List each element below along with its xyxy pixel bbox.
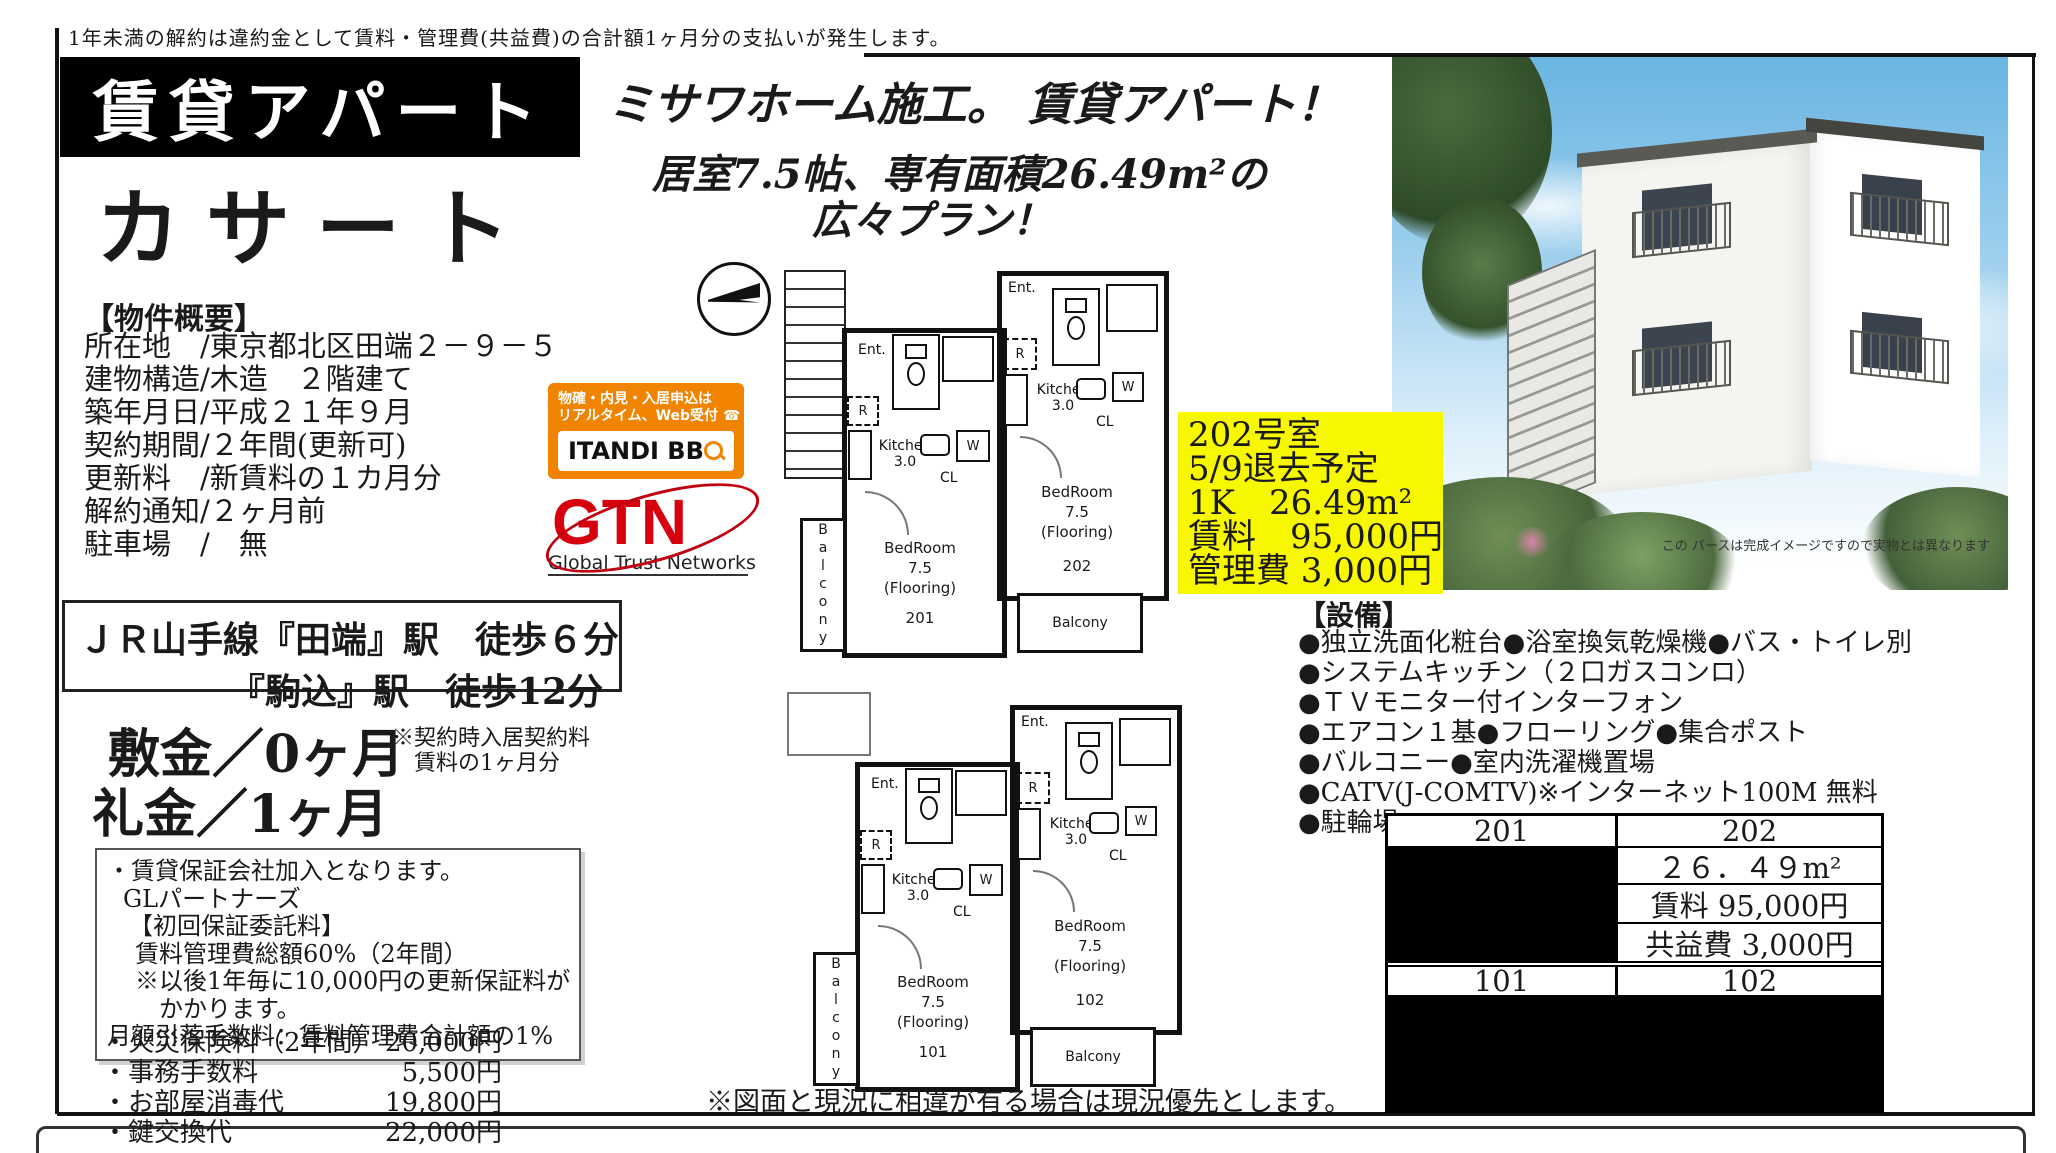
toilet-tank-icon [918, 778, 940, 793]
equipment-line: ●独立洗面化粧台●浴室換気乾燥機●バス・トイレ別 [1298, 628, 1912, 658]
highlight-line: 5/9退去予定 [1188, 452, 1433, 486]
bedroom-size: 7.5 [1022, 502, 1132, 522]
balcony-202: Balcony [1017, 593, 1143, 653]
equipment-line: ●システムキッチン（２口ガスコンロ） [1298, 658, 1912, 688]
itandi-line-2-text: リアルタイム、Web受付 [558, 408, 718, 424]
kitchen-size: 3.0 [883, 888, 953, 904]
balcony-101: Balcony [813, 952, 859, 1086]
staircase [784, 270, 846, 479]
flyer-canvas: 1年未満の解約は違約金として賃料・管理費(共益費)の合計額1ヶ月分の支払いが発生… [0, 0, 2056, 1153]
gtn-logo: GTN Global Trust Networks [548, 492, 748, 592]
top-disclaimer: 1年未満の解約は違約金として賃料・管理費(共益費)の合計額1ヶ月分の支払いが発生… [68, 22, 950, 51]
fee-row: ・お部屋消毒代 19,800円 [102, 1088, 502, 1118]
toilet-icon [920, 796, 938, 820]
unit-202-number: 202 [1022, 556, 1132, 576]
ent-label: Ent. [871, 776, 899, 792]
fee-row: ・火災保険料（2年間） 20,000円 [102, 1028, 502, 1058]
itandi-search-bar: ITANDI BB [558, 431, 734, 471]
refrigerator-box: R [1016, 772, 1050, 804]
washbasin-icon [920, 434, 950, 456]
washer-box: W [956, 430, 990, 462]
fee-label: ・鍵交換代 [102, 1118, 232, 1148]
guarantee-line: ・賃貸保証会社加入となります。 [107, 858, 569, 886]
guarantee-line: 【初回保証委託料】 [129, 913, 569, 941]
flooring-word: (Flooring) [1035, 956, 1145, 976]
kitchen-counter [861, 864, 885, 914]
unit-201-number: 201 [865, 608, 975, 628]
equipment-line: ●バルコニー●室内洗濯機置場 [1298, 748, 1912, 778]
deposit-note-2: 賃料の1ヶ月分 [414, 751, 590, 776]
floorplan-2f: Ent. R Kitchen 3.0 W CL BedRoom 7.5 (Flo… [770, 256, 1190, 652]
toilet-room [1052, 288, 1100, 366]
balcony-102: Balcony [1030, 1027, 1156, 1087]
porch-outline [787, 692, 871, 756]
floorplan-note: ※図面と現況に相違が有る場合は現況優先とします。 [706, 1080, 1351, 1119]
bedroom-word: BedRoom [1035, 916, 1145, 936]
property-name: カサート [96, 162, 536, 283]
fee-row: ・鍵交換代 22,000円 [102, 1118, 502, 1148]
deposit-reikin: 礼金／1ヶ月 [92, 772, 388, 847]
phone-icon: ☎ [723, 408, 740, 424]
itandi-brand: ITANDI BB [568, 437, 704, 465]
category-title: 賃貸アパート [93, 59, 548, 155]
highlight-line: 1K 26.49m² [1188, 486, 1433, 520]
fee-price: 19,800円 [385, 1088, 502, 1118]
kitchen-counter [848, 430, 872, 480]
access-box: ＪＲ山手線『田端』駅 徒歩６分 『駒込』駅 徒歩12分 [62, 600, 622, 692]
ent-label: Ent. [1021, 714, 1049, 730]
fee-price: 20,000円 [385, 1028, 502, 1058]
overview-line: 契約期間/２年間(更新可) [84, 429, 558, 462]
equipment-line: ●CATV(J-COMTV)※インターネット100M 無料 [1298, 778, 1912, 808]
table-cell-area: ２６．４９m² [1618, 848, 1881, 885]
kitchen-counter [1017, 808, 1041, 860]
access-line-1: ＪＲ山手線『田端』駅 徒歩６分 [79, 611, 605, 663]
kitchen-size: 3.0 [1041, 832, 1111, 848]
overview-line: 建物構造/木造 ２階建て [84, 363, 558, 396]
guarantee-line: 賃料管理費総額60%（2年間） [135, 941, 569, 969]
kitchen-size: 3.0 [870, 454, 940, 470]
frame-left-border [55, 28, 59, 1114]
deposit-note-1: ※契約時入居契約料 [392, 726, 590, 751]
equipment-line: ●ＴＶモニター付インターフォン [1298, 688, 1912, 718]
itandi-logo: 物確・内見・入居申込は リアルタイム、Web受付 ☎ ITANDI BB [548, 383, 744, 479]
overview-list: 所在地 /東京都北区田端２－９－５ 建物構造/木造 ２階建て 築年月日/平成２１… [84, 330, 558, 561]
fee-price: 5,500円 [402, 1058, 502, 1088]
bath-room [955, 770, 1007, 816]
table-cell-common-fee: 共益費 3,000円 [1618, 924, 1881, 963]
bath-room [1119, 718, 1171, 766]
bedroom-word: BedRoom [865, 538, 975, 558]
flooring-word: (Flooring) [1022, 522, 1132, 542]
overview-line: 築年月日/平成２１年９月 [84, 396, 558, 429]
photo-caption: この パースは完成イメージですので実物とは異なります [1662, 535, 1990, 554]
bedroom-101-label: BedRoom 7.5 (Flooring) [878, 972, 988, 1032]
washer-box: W [969, 864, 1003, 896]
table-cell-1f-redacted [1388, 995, 1881, 1110]
balcony-201: Balcony [800, 518, 846, 652]
bath-room [1106, 284, 1158, 332]
toilet-room [892, 334, 940, 410]
fee-price: 22,000円 [385, 1118, 502, 1148]
price-table: 201 202 ２６．４９m² 賃料 95,000円 共益費 3,000円 10… [1385, 813, 1884, 1113]
itandi-line-2: リアルタイム、Web受付 ☎ [558, 408, 734, 425]
headline-1: ミサワホーム施工。 賃貸アパート！ [608, 68, 1341, 133]
table-cell-rent: 賃料 95,000円 [1618, 885, 1881, 924]
bedroom-size: 7.5 [865, 558, 975, 578]
highlight-line: 管理費 3,000円 [1188, 554, 1433, 588]
toilet-tank-icon [905, 344, 927, 359]
unit-101-number: 101 [878, 1042, 988, 1062]
fee-row: ・事務手数料 5,500円 [102, 1058, 502, 1088]
washbasin-icon [1089, 812, 1119, 834]
toilet-icon [907, 362, 925, 386]
closet-label: CL [1109, 848, 1127, 864]
bedroom-word: BedRoom [1022, 482, 1132, 502]
unit-102-number: 102 [1035, 990, 1145, 1010]
itandi-line-1: 物確・内見・入居申込は [558, 391, 734, 408]
fee-label: ・事務手数料 [102, 1058, 258, 1088]
toilet-tank-icon [1065, 298, 1087, 313]
closet-label: CL [1096, 414, 1114, 430]
equipment-list: ●独立洗面化粧台●浴室換気乾燥機●バス・トイレ別 ●システムキッチン（２口ガスコ… [1298, 628, 1912, 838]
washbasin-icon [1076, 378, 1106, 400]
table-cell-201-redacted [1388, 848, 1618, 963]
ent-label: Ent. [1008, 280, 1036, 296]
table-header-102: 102 [1618, 965, 1881, 997]
ent-label: Ent. [858, 342, 886, 358]
overview-line: 解約通知/２ヶ月前 [84, 495, 558, 528]
washer-box: W [1112, 372, 1144, 402]
toilet-room [905, 768, 953, 844]
fees-list: ・火災保険料（2年間） 20,000円 ・事務手数料 5,500円 ・お部屋消毒… [102, 1028, 502, 1148]
fee-label: ・火災保険料（2年間） [102, 1028, 379, 1058]
toilet-icon [1080, 750, 1098, 774]
bedroom-102-label: BedRoom 7.5 (Flooring) [1035, 916, 1145, 976]
highlight-line: 202号室 [1188, 418, 1433, 452]
refrigerator-box: R [860, 830, 892, 860]
guarantee-line: かかります。 [159, 996, 569, 1024]
washer-box: W [1125, 806, 1157, 836]
closet-label: CL [953, 904, 971, 920]
refrigerator-box: R [1003, 338, 1037, 370]
frame-right-border [2032, 53, 2035, 1114]
kitchen-size: 3.0 [1028, 398, 1098, 414]
access-line-2: 『駒込』駅 徒歩12分 [229, 663, 605, 715]
guarantee-line: ※以後1年毎に10,000円の更新保証料が [135, 968, 569, 996]
bedroom-202-label: BedRoom 7.5 (Flooring) [1022, 482, 1132, 542]
flooring-word: (Flooring) [878, 1012, 988, 1032]
overview-line: 所在地 /東京都北区田端２－９－５ [84, 330, 558, 363]
fee-label: ・お部屋消毒代 [102, 1088, 284, 1118]
kitchen-counter [1004, 374, 1028, 426]
toilet-icon [1067, 316, 1085, 340]
compass-arrow-icon [708, 283, 760, 309]
bedroom-size: 7.5 [878, 992, 988, 1012]
highlight-line: 賃料 95,000円 [1188, 520, 1433, 554]
building-photo: この パースは完成イメージですので実物とは異なります [1392, 57, 2008, 590]
closet-label: CL [940, 470, 958, 486]
search-icon [704, 441, 724, 461]
table-header-101: 101 [1388, 965, 1618, 997]
washbasin-icon [933, 868, 963, 890]
refrigerator-box: R [847, 396, 879, 426]
flowers [1512, 527, 1552, 557]
bath-room [942, 336, 994, 382]
table-header-202: 202 [1618, 816, 1881, 848]
bedroom-201-label: BedRoom 7.5 (Flooring) [865, 538, 975, 598]
deposit-note: ※契約時入居契約料 賃料の1ヶ月分 [392, 726, 590, 776]
bedroom-word: BedRoom [878, 972, 988, 992]
bedroom-size: 7.5 [1035, 936, 1145, 956]
overview-line: 更新料 /新賃料の１カ月分 [84, 462, 558, 495]
overview-line: 駐車場 / 無 [84, 528, 558, 561]
headline-3: 広々プラン！ [812, 188, 1052, 246]
compass-icon [697, 262, 771, 336]
equipment-line: ●エアコン１基●フローリング●集合ポスト [1298, 718, 1912, 748]
toilet-tank-icon [1078, 732, 1100, 747]
table-header-201: 201 [1388, 816, 1618, 848]
floorplan-1f: Ent. R Kitchen 3.0 W CL BedRoom 7.5 (Flo… [783, 690, 1203, 1086]
flooring-word: (Flooring) [865, 578, 975, 598]
category-title-box: 賃貸アパート [60, 57, 580, 157]
highlight-box: 202号室 5/9退去予定 1K 26.49m² 賃料 95,000円 管理費 … [1178, 412, 1443, 594]
guarantee-line: GLパートナーズ [123, 886, 569, 914]
toilet-room [1065, 722, 1113, 800]
